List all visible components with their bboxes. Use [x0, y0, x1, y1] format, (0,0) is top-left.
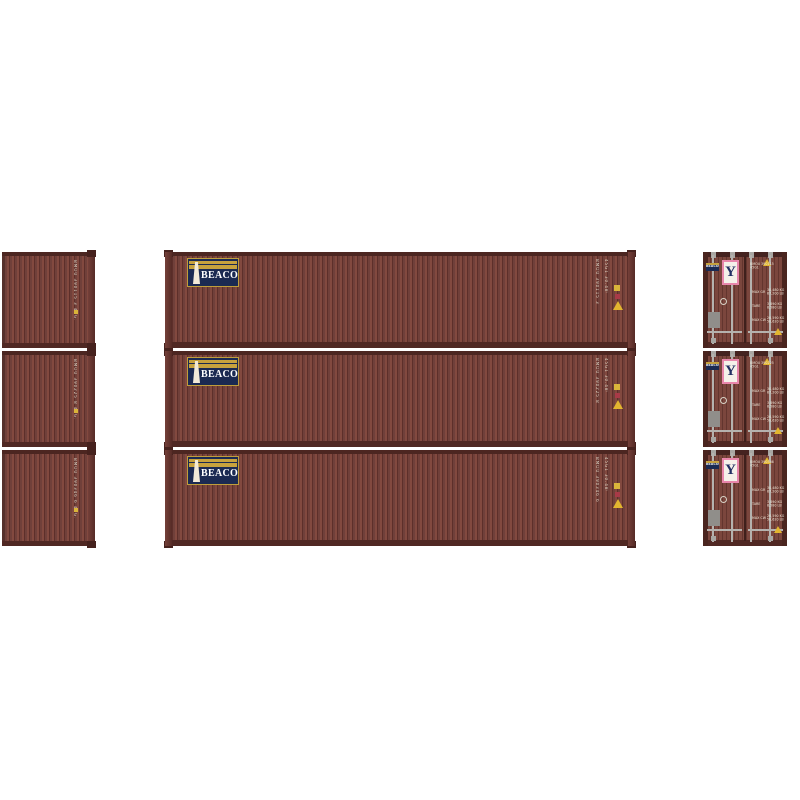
warning-triangle-icon	[774, 526, 782, 533]
container-side-view: BEACON BMOU 390346 6 45G1 30.480 KG	[165, 450, 635, 546]
corner-casting	[87, 448, 96, 455]
circle-mark-icon	[720, 298, 727, 305]
spec-marking-vertical: 45G1 30.480 KG	[604, 457, 608, 491]
circle-mark-icon	[720, 496, 727, 503]
door-handle-bar	[707, 331, 742, 333]
warning-triangle-icon	[613, 301, 623, 310]
yellow-sticker	[614, 483, 620, 489]
yellow-sticker	[74, 409, 78, 413]
beacon-logo: BEACON	[187, 456, 239, 485]
type-code: 45G1	[750, 365, 769, 369]
container-side-view: BEACON BMOU 390225 8 45G1 30.480 KG	[165, 351, 635, 447]
corner-post	[628, 450, 635, 546]
yellow-sticker	[74, 508, 78, 512]
corner-post	[628, 252, 635, 348]
door-seam	[744, 355, 746, 442]
container-back-view: BMOU 390346 6 45G1	[2, 450, 95, 546]
bottom-rail	[2, 442, 95, 447]
corner-post	[88, 252, 95, 348]
beacon-logo: BEACON	[187, 357, 239, 386]
corner-post	[165, 450, 172, 546]
type-code: 45G1	[750, 464, 769, 468]
corner-post	[88, 351, 95, 447]
y-logo: Y	[722, 260, 739, 285]
data-plate	[708, 411, 720, 427]
container-back-view: BMOU 390225 8 45G1	[2, 351, 95, 447]
weight-table-row: TARE 3,890 KG8,580 LB	[752, 500, 786, 514]
door-hinge-icon	[711, 536, 716, 541]
red-sticker	[615, 294, 620, 299]
y-logo: Y	[722, 458, 739, 483]
beacon-mini-logo: BEACON	[706, 461, 719, 469]
door-handle-bar	[707, 430, 742, 432]
corner-casting	[87, 250, 96, 257]
door-handle-bar	[707, 529, 742, 531]
weight-table-row: TARE 3,890 KG8,580 LB	[752, 302, 786, 316]
red-sticker	[615, 492, 620, 497]
data-plate	[708, 510, 720, 526]
warning-triangle-icon	[613, 499, 623, 508]
left-edge	[2, 351, 5, 447]
container-side-view: BEACON BMOU 390115 3 45G1 30.480 KG	[165, 252, 635, 348]
beacon-logo-text: BEACON	[201, 270, 239, 281]
container-door-view: BEACON Y BMOU 390225 45G1 MAX GR 30,480 …	[703, 351, 787, 447]
container-number-vertical: BMOU 390346 6	[595, 457, 599, 503]
bottom-rail	[165, 441, 635, 447]
beacon-mini-logo: BEACON	[706, 263, 719, 271]
warning-triangle-icon	[774, 328, 782, 335]
weight-table-row: TARE 3,890 KG8,580 LB	[752, 401, 786, 415]
yellow-sticker	[614, 285, 620, 291]
type-code: 45G1	[750, 266, 769, 270]
corner-casting	[87, 541, 96, 548]
door-hinge-icon	[711, 338, 716, 343]
weight-table-row: MAX GR 30,480 KG67,200 LB	[752, 387, 786, 401]
corner-post	[628, 351, 635, 447]
container-door-view: BEACON Y BMOU 390115 45G1 MAX GR 30,480 …	[703, 252, 787, 348]
data-plate	[708, 312, 720, 328]
spec-marking-vertical: 45G1 30.480 KG	[604, 259, 608, 293]
container-number: BMOU 390115 45G1	[750, 262, 785, 276]
corner-post	[165, 252, 172, 348]
top-rail	[2, 252, 95, 256]
container-number: BMOU 390225 45G1	[750, 361, 785, 375]
bottom-rail	[165, 342, 635, 348]
door-hinge-icon	[768, 338, 773, 343]
warning-triangle-icon	[613, 400, 623, 409]
container-number: BMOU 390346 45G1	[750, 460, 785, 474]
container-number-vertical: BMOU 390115 3	[595, 259, 599, 305]
corner-post	[165, 351, 172, 447]
left-edge	[2, 450, 5, 546]
weight-table-row: MAX GR 30,480 KG67,200 LB	[752, 288, 786, 302]
top-rail	[2, 351, 95, 355]
bottom-rail	[2, 541, 95, 546]
top-rail	[165, 252, 635, 256]
beacon-logo-text: BEACON	[201, 468, 239, 479]
door-hinge-icon	[768, 437, 773, 442]
beacon-logo: BEACON	[187, 258, 239, 287]
y-logo: Y	[722, 359, 739, 384]
product-photo: BMOU 390115 3 45G1 BMOU 390225 8 45G1 BM…	[0, 0, 800, 800]
door-hinge-icon	[768, 536, 773, 541]
red-sticker	[615, 393, 620, 398]
door-seam	[744, 256, 746, 343]
circle-mark-icon	[720, 397, 727, 404]
beacon-logo-text: BEACON	[201, 369, 239, 380]
weight-table-row: MAX GR 30,480 KG67,200 LB	[752, 486, 786, 500]
container-number-vertical: BMOU 390225 8	[595, 358, 599, 404]
beacon-mini-logo: BEACON	[706, 362, 719, 370]
container-door-view: BEACON Y BMOU 390346 45G1 MAX GR 30,480 …	[703, 450, 787, 546]
top-rail	[2, 450, 95, 454]
warning-triangle-icon	[774, 427, 782, 434]
yellow-sticker	[74, 310, 78, 314]
door-hinge-icon	[711, 437, 716, 442]
bottom-rail	[2, 343, 95, 348]
yellow-sticker	[614, 384, 620, 390]
left-edge	[2, 252, 5, 348]
container-back-view: BMOU 390115 3 45G1	[2, 252, 95, 348]
door-seam	[744, 454, 746, 541]
top-rail	[165, 351, 635, 355]
spec-marking-vertical: 45G1 30.480 KG	[604, 358, 608, 392]
corner-post	[88, 450, 95, 546]
top-rail	[165, 450, 635, 454]
bottom-rail	[165, 540, 635, 546]
corner-casting	[87, 349, 96, 356]
